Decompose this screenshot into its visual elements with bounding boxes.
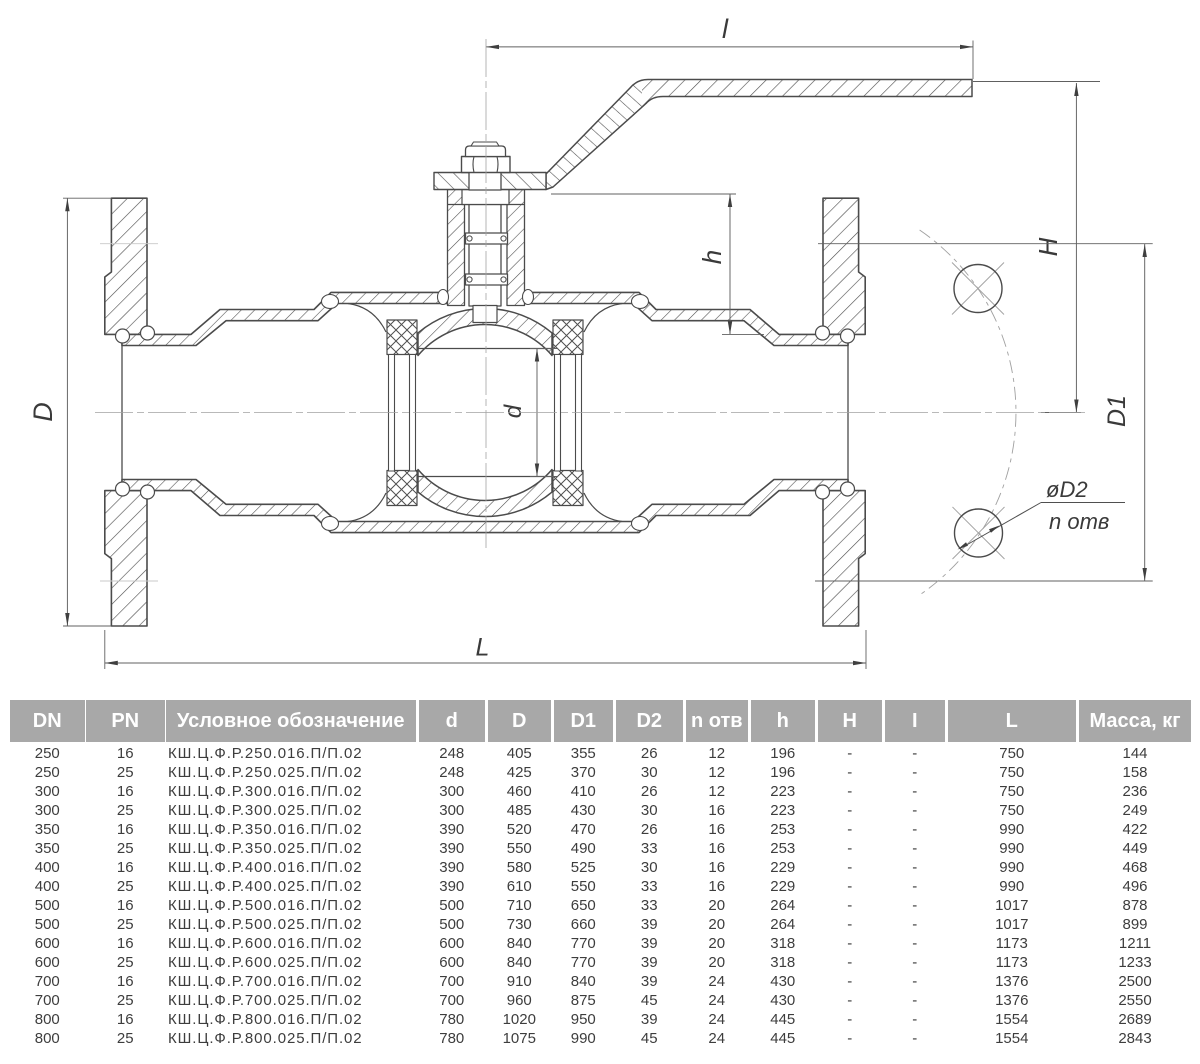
svg-text:øD2: øD2: [1046, 477, 1088, 502]
svg-text:l: l: [722, 14, 729, 44]
svg-text:D1: D1: [1103, 395, 1131, 427]
svg-text:H: H: [1033, 237, 1063, 256]
svg-text:D: D: [28, 402, 58, 422]
svg-text:h: h: [697, 250, 727, 264]
svg-text:d: d: [500, 404, 527, 418]
svg-text:L: L: [476, 634, 490, 662]
svg-text:n отв: n отв: [1049, 509, 1109, 534]
